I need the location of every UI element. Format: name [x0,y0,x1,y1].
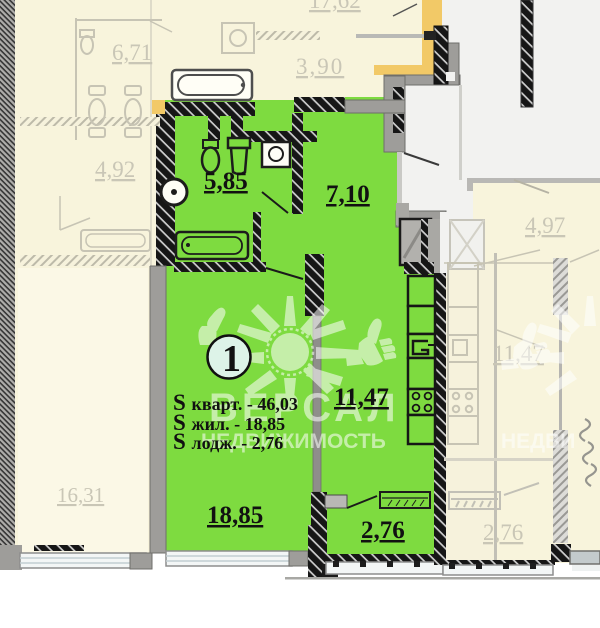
svg-text:7,10: 7,10 [326,181,370,208]
svg-text:4,92: 4,92 [95,157,135,182]
svg-text:18,85: 18,85 [207,502,263,529]
svg-text:11,47: 11,47 [334,384,389,411]
svg-text:1: 1 [222,338,241,380]
svg-text:2,76: 2,76 [483,520,523,545]
svg-text:3,90: 3,90 [296,54,344,79]
svg-text:17,62: 17,62 [309,0,361,13]
svg-text:4,97: 4,97 [525,213,565,238]
svg-text:S кварт. - 46,03: S кварт. - 46,03 [173,390,298,415]
svg-text:16,31: 16,31 [57,483,104,507]
svg-text:S лодж. - 2,76: S лодж. - 2,76 [173,429,283,454]
svg-text:2,76: 2,76 [361,517,405,544]
svg-text:5,85: 5,85 [204,168,248,195]
svg-text:НЕДВИ: НЕДВИ [501,430,575,453]
svg-text:6,71: 6,71 [112,40,152,65]
